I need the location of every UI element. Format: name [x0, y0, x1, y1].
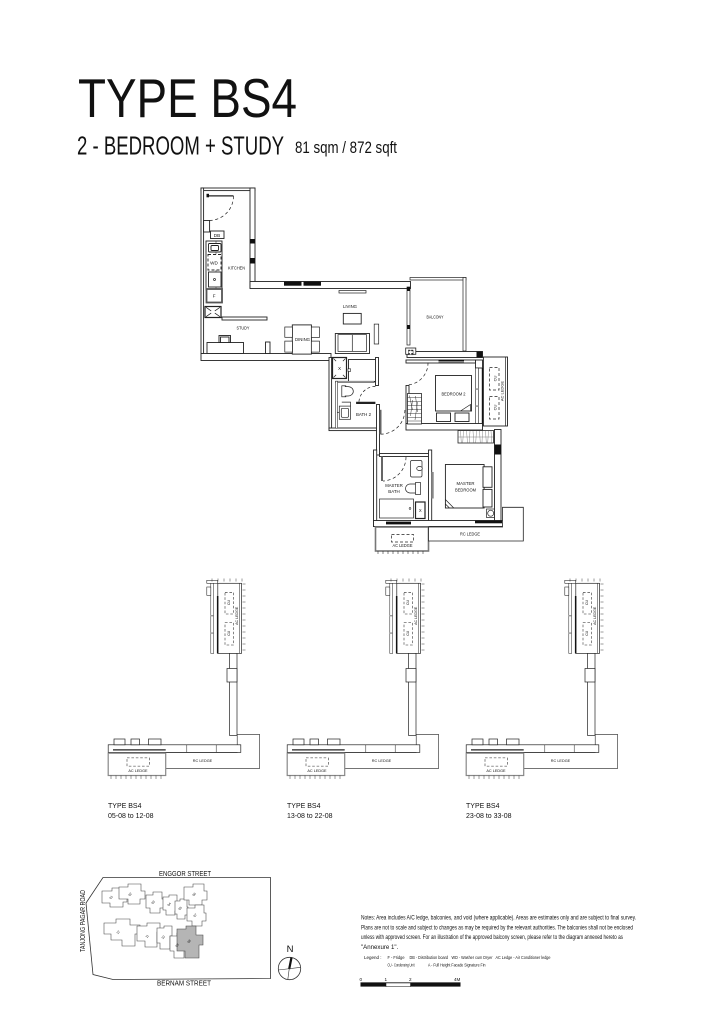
- svg-text:4M: 4M: [454, 977, 461, 982]
- svg-text:F - Fridge: F - Fridge: [388, 955, 405, 961]
- svg-text:LIVING: LIVING: [343, 304, 357, 310]
- svg-text:ENGGOR STREET: ENGGOR STREET: [159, 871, 212, 878]
- svg-text:81 sqm / 872 sqft: 81 sqm / 872 sqft: [295, 139, 397, 157]
- svg-text:Plans are not to scale and sub: Plans are not to scale and subject to ch…: [361, 924, 633, 931]
- svg-text:Notes: Area includes A/C ledge: Notes: Area includes A/C ledge, balconie…: [361, 915, 636, 922]
- svg-text:AC LEDGE: AC LEDGE: [393, 543, 413, 548]
- svg-text:TYPE BS4: TYPE BS4: [287, 803, 321, 810]
- svg-text:CU - Condensing Unit: CU - Condensing Unit: [388, 963, 415, 969]
- svg-text:05-08 to 12-08: 05-08 to 12-08: [108, 813, 154, 820]
- svg-text:2 - BEDROOM + STUDY: 2 - BEDROOM + STUDY: [77, 131, 284, 161]
- svg-text:TANJONG PAGAR ROAD: TANJONG PAGAR ROAD: [80, 890, 87, 952]
- svg-text:TYPE BS4: TYPE BS4: [466, 803, 500, 810]
- svg-text:CU: CU: [493, 376, 498, 382]
- svg-text:DB: DB: [214, 233, 220, 238]
- svg-text:STUDY: STUDY: [237, 326, 251, 332]
- svg-text:X: X: [338, 366, 341, 371]
- svg-text:WD: WD: [210, 261, 218, 266]
- svg-text:WD - Washer cum Dryer: WD - Washer cum Dryer: [452, 955, 493, 961]
- svg-text:F: F: [213, 294, 216, 299]
- svg-text:TYPE BS4: TYPE BS4: [78, 67, 297, 129]
- svg-text:0: 0: [360, 977, 363, 982]
- svg-text:BEDROOM: BEDROOM: [455, 488, 476, 494]
- svg-text:KITCHEN: KITCHEN: [228, 266, 245, 272]
- svg-text:BATH 2: BATH 2: [356, 412, 372, 417]
- svg-text:N: N: [287, 944, 294, 955]
- svg-text:AC Ledge - Air Conditioner led: AC Ledge - Air Conditioner ledge: [496, 955, 551, 961]
- svg-text:RC LEDGE: RC LEDGE: [460, 532, 480, 537]
- svg-text:"Annexure 1".: "Annexure 1".: [361, 944, 398, 951]
- svg-text:DB - Distribution board: DB - Distribution board: [410, 955, 449, 961]
- svg-text:unless with approved screen. F: unless with approved screen. For an illu…: [361, 934, 623, 941]
- svg-text:BALCONY: BALCONY: [427, 315, 445, 321]
- svg-text:CU: CU: [493, 405, 498, 411]
- svg-text:Legend :: Legend :: [364, 955, 382, 961]
- svg-text:DINING: DINING: [295, 337, 310, 343]
- svg-text:X: X: [419, 508, 422, 513]
- svg-text:23-08 to 33-08: 23-08 to 33-08: [466, 813, 512, 820]
- svg-text:AC LEDGE: AC LEDGE: [500, 381, 505, 402]
- svg-text:TYPE BS4: TYPE BS4: [108, 803, 142, 810]
- svg-text:1: 1: [385, 977, 388, 982]
- svg-text:MASTER: MASTER: [385, 483, 403, 488]
- svg-text:13-08 to 22-08: 13-08 to 22-08: [287, 813, 333, 820]
- svg-text:BATH: BATH: [388, 489, 400, 494]
- svg-text:BERNAM STREET: BERNAM STREET: [157, 981, 212, 988]
- svg-text:MASTER: MASTER: [457, 481, 475, 487]
- svg-text:BEDROOM 2: BEDROOM 2: [442, 392, 466, 398]
- svg-text:2: 2: [409, 977, 412, 982]
- svg-text:A - Full Height Facade Signatu: A - Full Height Facade Signature Fin: [428, 963, 486, 969]
